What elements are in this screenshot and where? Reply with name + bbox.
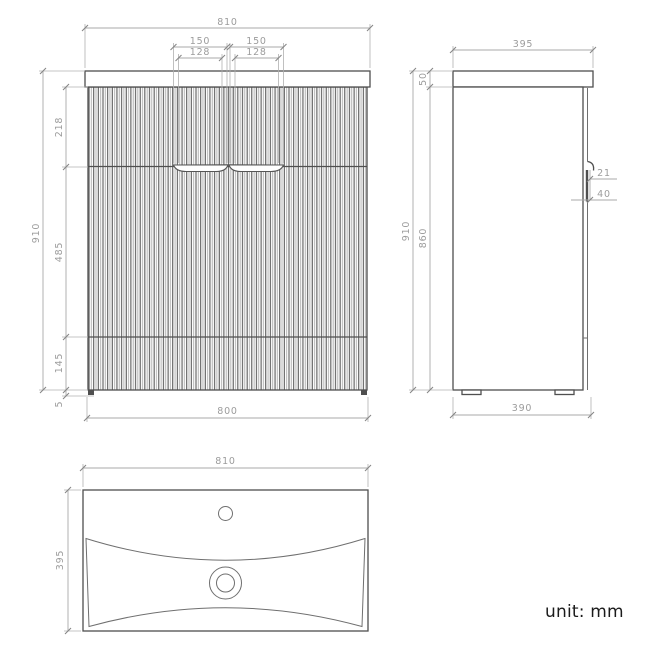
side-body xyxy=(453,87,583,390)
dim-front-handle-left-inner: 128 xyxy=(190,47,211,58)
basin-outline xyxy=(83,490,368,631)
front-foot-left xyxy=(88,390,94,395)
front-fluted-body xyxy=(88,87,367,390)
dim-side-cabinet-height: 860 xyxy=(418,228,429,249)
front-handle-right xyxy=(229,165,284,172)
dim-front-width-bottom: 800 xyxy=(217,406,238,417)
front-cabinet-outline xyxy=(85,71,370,395)
dim-front-handle-left-outer: 150 xyxy=(190,36,211,47)
dim-side-handle-recess: 40 xyxy=(597,189,611,200)
dim-front-handle-right-outer: 150 xyxy=(246,36,267,47)
front-elevation-view: 810 150 150 128 128 218 910 485 145 5 80… xyxy=(31,17,373,422)
front-countertop xyxy=(85,71,370,87)
dim-front-middle-height: 485 xyxy=(54,242,65,263)
dim-side-handle-lip: 21 xyxy=(597,168,611,179)
dim-basin-depth: 395 xyxy=(55,550,66,571)
dim-front-foot-height: 5 xyxy=(54,401,65,408)
dim-front-drawer-height: 218 xyxy=(54,117,65,138)
technical-drawing-canvas: 810 150 150 128 128 218 910 485 145 5 80… xyxy=(0,0,650,650)
side-elevation-view: 395 50 910 860 21 40 390 xyxy=(401,39,617,419)
dim-front-overall-height: 910 xyxy=(31,223,42,244)
front-foot-right xyxy=(361,390,367,395)
dim-basin-width: 810 xyxy=(215,456,236,467)
dim-side-depth-bottom: 390 xyxy=(512,403,533,414)
side-foot-back xyxy=(555,390,574,395)
side-countertop xyxy=(453,71,593,87)
drawing-svg: 810 150 150 128 128 218 910 485 145 5 80… xyxy=(0,0,650,650)
front-handle-left xyxy=(174,165,229,172)
side-foot-front xyxy=(462,390,481,395)
dim-side-depth-top: 395 xyxy=(513,39,534,50)
dim-side-overall-height: 910 xyxy=(401,221,412,242)
side-handle-curl xyxy=(588,162,594,171)
side-cabinet-outline xyxy=(453,71,594,395)
dim-front-bottom-height: 145 xyxy=(54,353,65,374)
dim-front-handle-right-inner: 128 xyxy=(246,47,267,58)
basin-top-view: 810 395 xyxy=(55,456,371,634)
dim-side-counter-thickness: 50 xyxy=(418,72,429,86)
unit-note: unit: mm xyxy=(545,602,624,622)
dim-front-width-top: 810 xyxy=(217,17,238,28)
